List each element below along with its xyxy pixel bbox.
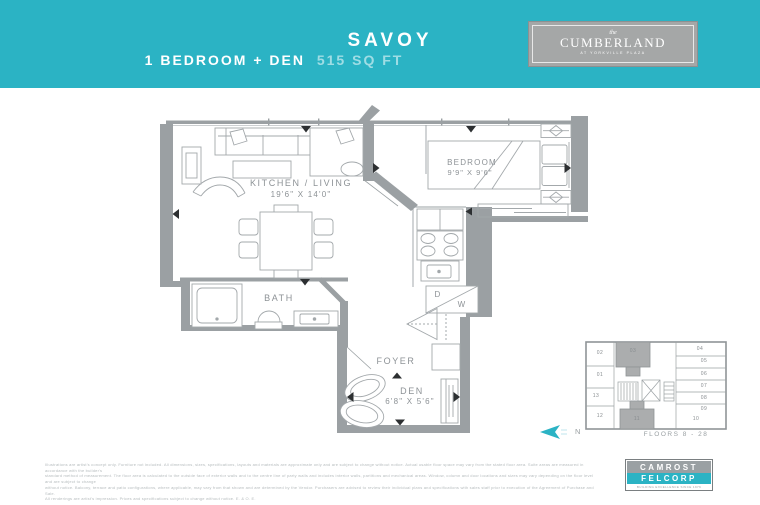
- developer-tagline: BUILDING EXCELLENCE SINCE 1976: [627, 484, 711, 489]
- north-label: N: [575, 427, 580, 436]
- camrost-felcorp-logo: CAMROST FELCORP BUILDING EXCELLENCE SINC…: [625, 459, 713, 491]
- plan-name: SAVOY: [300, 30, 480, 52]
- coffee-table: [233, 161, 291, 178]
- dining-set: [239, 205, 333, 278]
- header-band: SAVOY 1 BEDROOM + DEN 515 SQ FT the CUMB…: [0, 0, 760, 88]
- kitchen-sink: [421, 261, 459, 281]
- north-arrow-icon: [538, 424, 572, 442]
- keyplan-unit-09: 09: [692, 406, 716, 412]
- keyplan-unit-07: 07: [692, 383, 716, 389]
- washer-label: W: [458, 300, 467, 309]
- keyplan-unit-05: 05: [692, 358, 716, 364]
- disclaimer: Illustrations are artist's concept only.…: [45, 462, 597, 502]
- shower: [192, 284, 242, 327]
- keyplan: 01 02 03 04 05 06 07 08 09 10 11 12 13: [580, 338, 740, 443]
- bedroom-label: BEDROOM: [447, 158, 497, 167]
- den-dims: 6'8" X 5'6": [385, 397, 435, 406]
- keyplan-unit-04: 04: [688, 346, 712, 352]
- cumberland-logo: the CUMBERLAND AT YORKVILLE PLAZA: [528, 21, 698, 67]
- kitchen-living-label: KITCHEN / LIVING: [250, 178, 352, 188]
- keyplan-unit-10: 10: [684, 416, 708, 422]
- brand-name: CUMBERLAND: [533, 36, 693, 49]
- foyer-label: FOYER: [376, 356, 415, 366]
- toilet: [255, 311, 282, 329]
- plan-area: 515 SQ FT: [317, 52, 403, 68]
- keyplan-unit-13: 13: [584, 393, 608, 399]
- cumberland-logo-inner: the CUMBERLAND AT YORKVILLE PLAZA: [532, 25, 694, 63]
- disclaimer-line: All renderings are artist's impression. …: [45, 496, 597, 502]
- keyplan-unit-01: 01: [588, 372, 612, 378]
- keyplan-unit-11: 11: [625, 416, 649, 422]
- kitchen-living-dims: 19'6" X 14'0": [271, 190, 332, 199]
- brand-tagline: AT YORKVILLE PLAZA: [533, 51, 693, 55]
- bath-label: BATH: [264, 293, 294, 303]
- den-desk: [441, 379, 458, 423]
- dryer-label: D: [435, 290, 442, 299]
- keyplan-unit-06: 06: [692, 371, 716, 377]
- floorplan-drawing: [160, 95, 600, 465]
- keyplan-unit-12: 12: [588, 413, 612, 419]
- fridge: [417, 209, 463, 230]
- foyer-closet: [432, 344, 460, 370]
- floors-label: FLOORS 8 - 28: [620, 431, 732, 438]
- keyplan-unit-03: 03: [621, 348, 645, 354]
- north-arrow: N: [538, 424, 590, 444]
- tv-console: [182, 147, 201, 184]
- disclaimer-line: Illustrations are artist's concept only.…: [45, 462, 597, 473]
- disclaimer-line: without notice. Balcony, terrace and pat…: [45, 485, 597, 496]
- plan-subtitle: 1 BEDROOM + DEN 515 SQ FT: [98, 52, 450, 68]
- vanity-sink: [294, 311, 338, 327]
- floorplan-sheet: SAVOY 1 BEDROOM + DEN 515 SQ FT the CUMB…: [0, 0, 760, 505]
- keyplan-unit-02: 02: [588, 350, 612, 356]
- camrost-label: CAMROST: [627, 461, 711, 473]
- den-label: DEN: [400, 386, 424, 396]
- stove: [417, 231, 463, 260]
- keyplan-unit-08: 08: [692, 395, 716, 401]
- felcorp-label: FELCORP: [627, 473, 711, 485]
- bedroom-dims: 9'9" X 9'6": [447, 168, 492, 177]
- disclaimer-line: standard method of measurement. The floo…: [45, 473, 597, 484]
- plan-type: 1 BEDROOM + DEN: [145, 52, 305, 68]
